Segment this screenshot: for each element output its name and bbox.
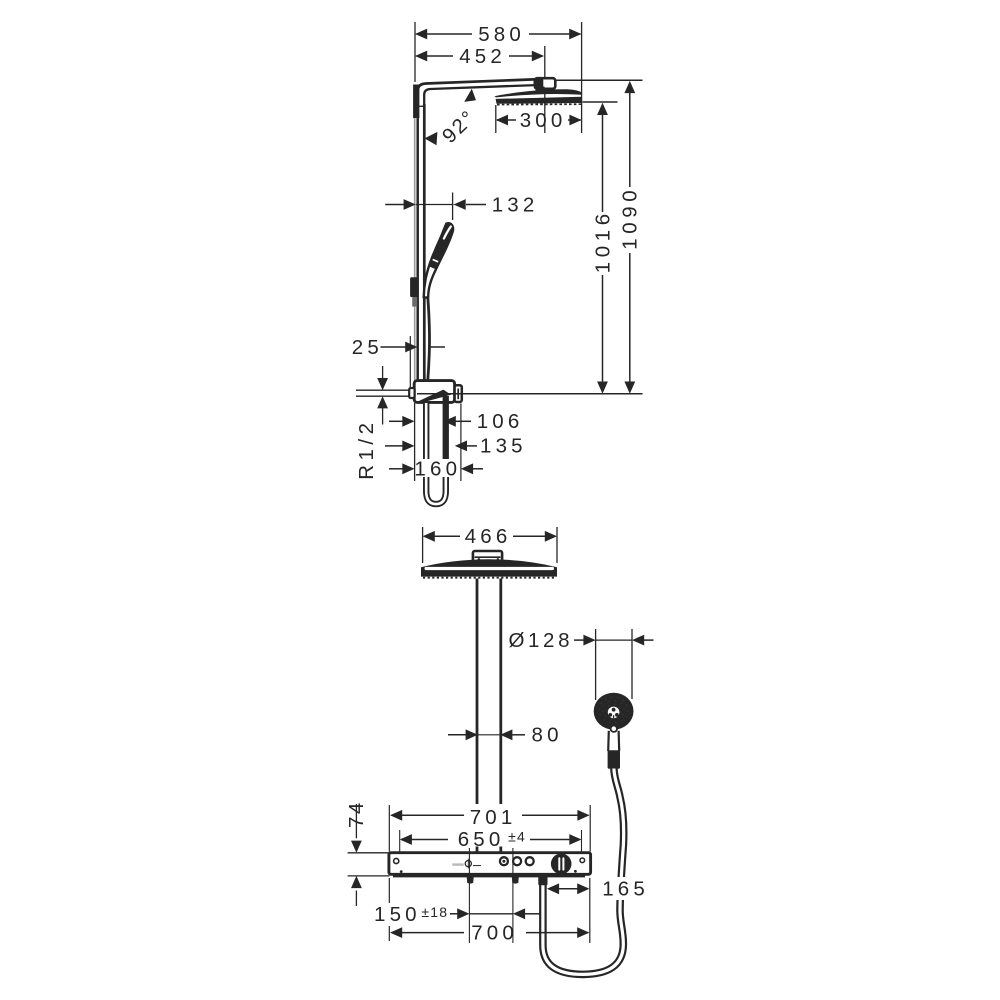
svg-text:1016: 1016 [592, 209, 615, 273]
svg-text:650: 650 [458, 828, 505, 851]
svg-text:74: 74 [345, 800, 368, 828]
svg-text:466: 466 [465, 525, 512, 548]
svg-text:452: 452 [459, 45, 506, 68]
svg-text:150: 150 [374, 903, 421, 926]
svg-text:R1/2: R1/2 [355, 418, 378, 479]
svg-text:160: 160 [414, 458, 461, 481]
svg-text:±18: ±18 [421, 904, 448, 920]
svg-text:25: 25 [352, 336, 383, 359]
svg-text:165: 165 [602, 878, 649, 901]
svg-text:1090: 1090 [619, 186, 642, 250]
svg-text:701: 701 [470, 806, 517, 829]
svg-text:135: 135 [480, 435, 527, 458]
svg-text:Ø128: Ø128 [509, 629, 574, 652]
svg-text:106: 106 [477, 410, 524, 433]
svg-text:132: 132 [492, 193, 539, 216]
svg-text:300: 300 [520, 109, 567, 132]
svg-text:700: 700 [471, 922, 518, 945]
svg-text:580: 580 [478, 23, 525, 46]
svg-text:±4: ±4 [508, 829, 526, 845]
svg-text:80: 80 [531, 724, 562, 747]
